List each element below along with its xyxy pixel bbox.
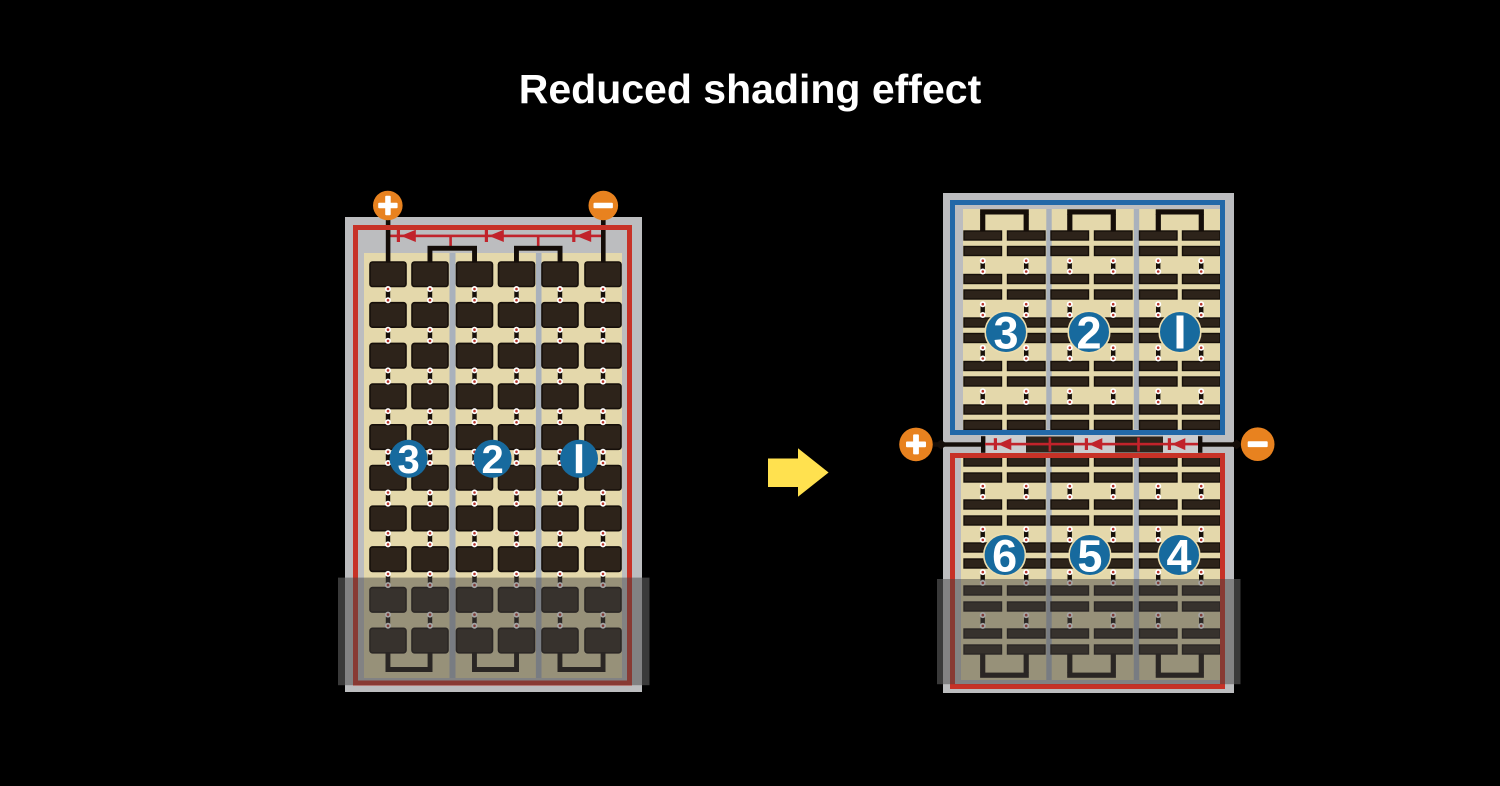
svg-text:2: 2 <box>481 438 503 482</box>
svg-text:Reduced shading effect: Reduced shading effect <box>519 66 982 112</box>
svg-text:5: 5 <box>1077 530 1102 581</box>
svg-text:2: 2 <box>1076 307 1101 358</box>
svg-text:4: 4 <box>1166 530 1191 581</box>
svg-text:3: 3 <box>993 307 1018 358</box>
svg-text:6: 6 <box>992 530 1017 581</box>
svg-text:3: 3 <box>397 438 419 482</box>
